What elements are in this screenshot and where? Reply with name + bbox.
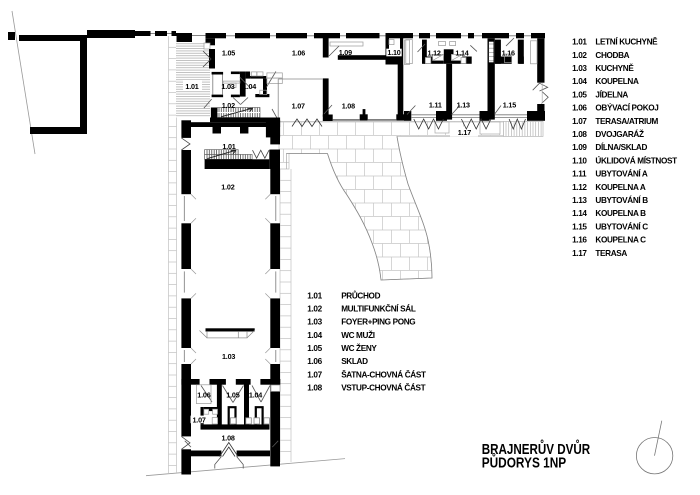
svg-text:1.14: 1.14	[572, 209, 587, 218]
svg-text:1.06: 1.06	[292, 48, 305, 57]
svg-text:1.06: 1.06	[197, 390, 210, 399]
svg-text:1.07: 1.07	[572, 117, 587, 126]
svg-text:1.13: 1.13	[572, 196, 587, 205]
svg-text:UBYTOVÁNÍ B: UBYTOVÁNÍ B	[595, 195, 648, 205]
svg-text:1.02: 1.02	[221, 182, 234, 191]
svg-text:1.02: 1.02	[307, 304, 322, 313]
svg-text:UBYTOVÁNÍ A: UBYTOVÁNÍ A	[595, 169, 648, 179]
svg-text:CHODBA: CHODBA	[595, 51, 629, 60]
svg-text:JÍDELNA: JÍDELNA	[595, 89, 628, 99]
svg-text:1.08: 1.08	[572, 130, 587, 139]
svg-text:VSTUP-CHOVNÁ ČÁST: VSTUP-CHOVNÁ ČÁST	[341, 381, 425, 392]
svg-text:ÚKLIDOVÁ MÍSTNOST: ÚKLIDOVÁ MÍSTNOST	[595, 154, 677, 165]
svg-text:1.11: 1.11	[572, 170, 587, 179]
svg-text:1.04: 1.04	[307, 331, 322, 340]
svg-text:1.04: 1.04	[249, 390, 262, 399]
svg-text:1.01: 1.01	[572, 38, 587, 47]
svg-text:1.17: 1.17	[458, 128, 471, 137]
svg-text:1.10: 1.10	[387, 48, 400, 57]
svg-text:UBYTOVÁNÍ C: UBYTOVÁNÍ C	[595, 221, 648, 231]
svg-text:1.04: 1.04	[572, 77, 587, 86]
svg-text:1.06: 1.06	[307, 357, 322, 366]
svg-text:TERASA/ATRIUM: TERASA/ATRIUM	[595, 117, 658, 126]
svg-text:1.05: 1.05	[222, 48, 235, 57]
svg-text:DÍLNA/SKLAD: DÍLNA/SKLAD	[595, 142, 647, 152]
svg-text:TERASA: TERASA	[595, 249, 627, 258]
svg-text:1.16: 1.16	[502, 48, 515, 57]
svg-text:1.08: 1.08	[221, 434, 234, 443]
svg-text:SKLAD: SKLAD	[341, 357, 368, 366]
svg-text:1.12: 1.12	[427, 48, 440, 57]
svg-text:1.03: 1.03	[572, 64, 587, 73]
svg-text:1.02: 1.02	[222, 101, 235, 110]
svg-text:KUCHYNĚ: KUCHYNĚ	[595, 62, 634, 73]
svg-text:1.07: 1.07	[192, 416, 205, 425]
svg-text:WC ŽENY: WC ŽENY	[341, 342, 377, 353]
svg-text:1.01: 1.01	[307, 291, 322, 300]
svg-text:1.01: 1.01	[185, 82, 198, 91]
svg-text:OBÝVACÍ POKOJ: OBÝVACÍ POKOJ	[595, 102, 658, 113]
svg-text:1.05: 1.05	[572, 90, 587, 99]
svg-text:KOUPELNA A: KOUPELNA A	[595, 183, 645, 192]
svg-text:1.07: 1.07	[292, 102, 305, 111]
svg-text:KOUPELNA B: KOUPELNA B	[595, 209, 646, 218]
svg-text:1.16: 1.16	[572, 236, 587, 245]
svg-text:1.03: 1.03	[222, 352, 235, 361]
svg-text:FOYER+PING PONG: FOYER+PING PONG	[341, 318, 415, 327]
svg-text:LETNÍ KUCHYNĚ: LETNÍ KUCHYNĚ	[595, 36, 658, 47]
svg-text:1.09: 1.09	[339, 48, 352, 57]
svg-text:1.12: 1.12	[572, 183, 587, 192]
svg-text:KOUPELNA: KOUPELNA	[595, 77, 639, 86]
svg-text:MULTIFUNKČNÍ SÁL: MULTIFUNKČNÍ SÁL	[341, 302, 416, 313]
svg-text:1.17: 1.17	[572, 249, 587, 258]
svg-text:1.05: 1.05	[226, 390, 239, 399]
svg-text:1.14: 1.14	[455, 48, 468, 57]
svg-text:1.05: 1.05	[307, 344, 322, 353]
svg-text:1.06: 1.06	[572, 104, 587, 113]
svg-text:1.03: 1.03	[307, 318, 322, 327]
svg-text:1.10: 1.10	[572, 156, 587, 165]
svg-text:1.08: 1.08	[307, 383, 322, 392]
svg-text:WC MUŽI: WC MUŽI	[341, 329, 375, 340]
svg-text:1.08: 1.08	[342, 102, 355, 111]
svg-text:1.02: 1.02	[572, 51, 587, 60]
svg-text:ŠATNA-CHOVNÁ ČÁST: ŠATNA-CHOVNÁ ČÁST	[341, 368, 426, 379]
svg-text:KOUPELNA C: KOUPELNA C	[595, 236, 646, 245]
svg-text:1.11: 1.11	[429, 101, 442, 110]
svg-text:DVOJGARÁŽ: DVOJGARÁŽ	[595, 128, 644, 139]
svg-text:PRŮCHOD: PRŮCHOD	[341, 289, 380, 300]
svg-text:1.15: 1.15	[572, 222, 587, 231]
svg-text:1.01: 1.01	[222, 142, 235, 151]
svg-text:1.04: 1.04	[243, 82, 256, 91]
svg-text:1.09: 1.09	[572, 143, 587, 152]
svg-text:1.03: 1.03	[221, 82, 234, 91]
svg-text:PŮDORYS 1NP: PŮDORYS 1NP	[482, 453, 567, 472]
svg-text:1.13: 1.13	[457, 101, 470, 110]
svg-text:1.15: 1.15	[503, 101, 516, 110]
svg-text:1.07: 1.07	[307, 370, 322, 379]
